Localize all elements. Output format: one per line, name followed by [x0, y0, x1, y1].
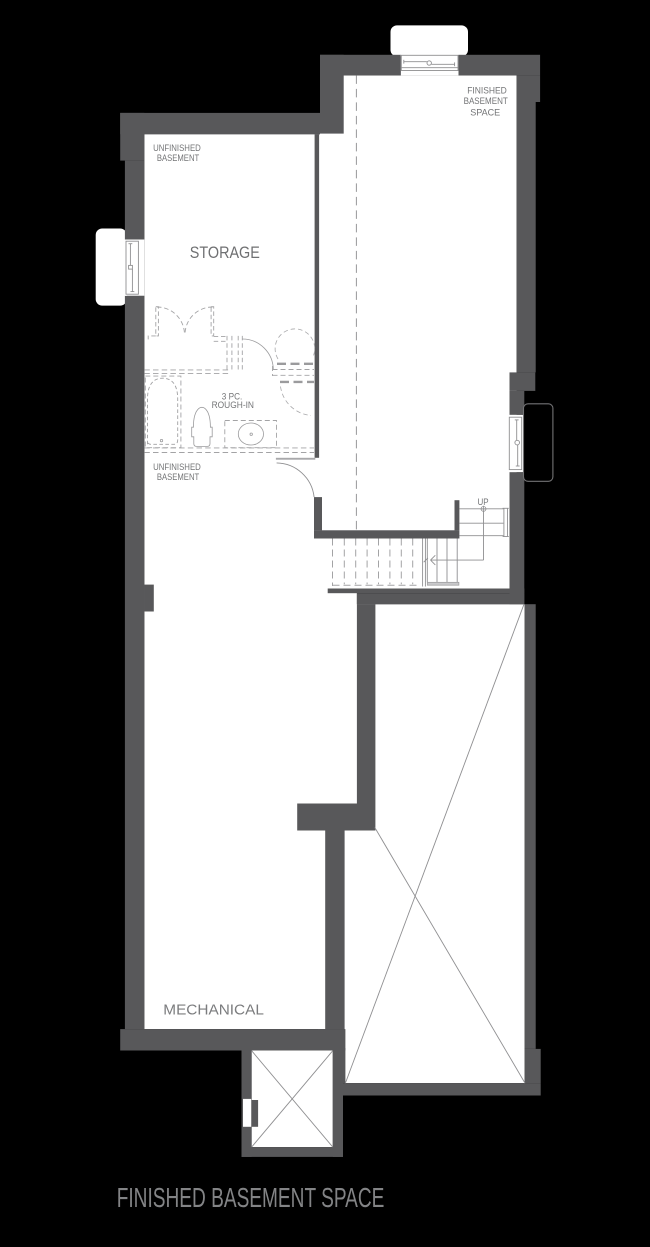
svg-text:SPACE: SPACE — [470, 107, 500, 118]
svg-text:FINISHED BASEMENT SPACE: FINISHED BASEMENT SPACE — [117, 1182, 385, 1213]
svg-text:STORAGE: STORAGE — [190, 244, 260, 262]
svg-text:BASEMENT: BASEMENT — [157, 472, 199, 483]
svg-text:FINISHED: FINISHED — [467, 86, 507, 97]
svg-text:MECHANICAL: MECHANICAL — [163, 1001, 264, 1018]
svg-text:ROUGH-IN: ROUGH-IN — [212, 400, 254, 411]
svg-text:BASEMENT: BASEMENT — [157, 153, 199, 164]
svg-text:BASEMENT: BASEMENT — [464, 96, 508, 107]
